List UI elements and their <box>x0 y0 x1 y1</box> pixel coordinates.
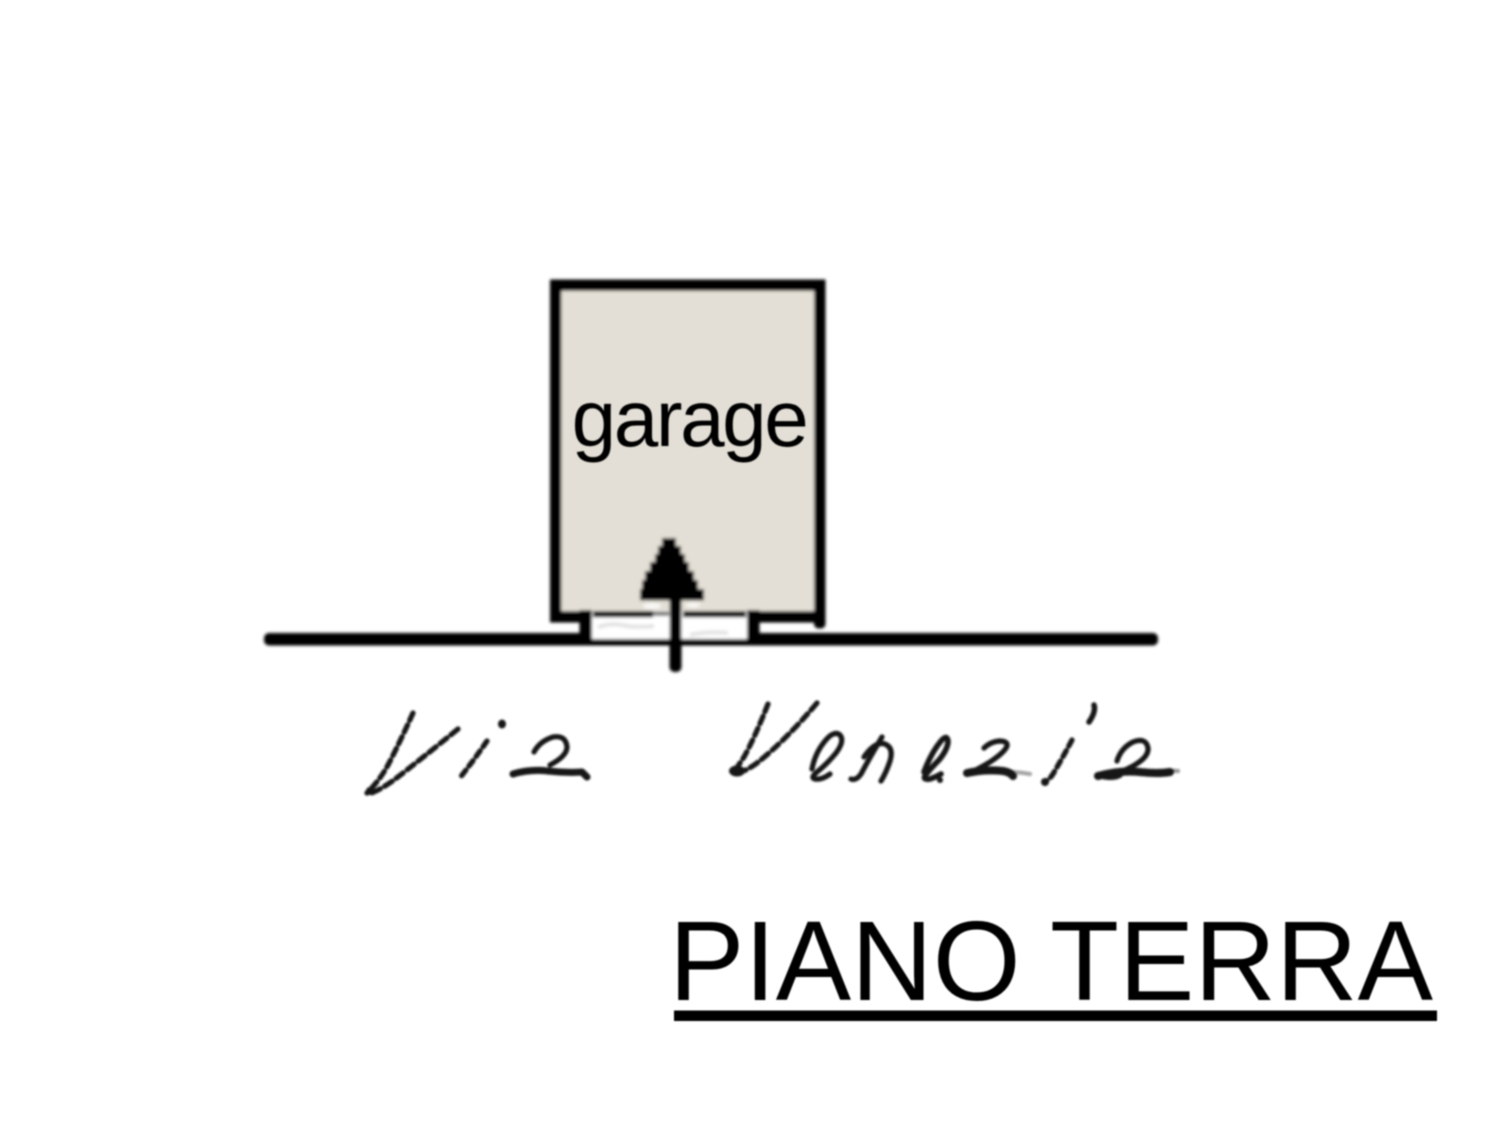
svg-text:PIANO TERRA: PIANO TERRA <box>669 898 1434 1024</box>
svg-text:garage: garage <box>572 374 807 463</box>
